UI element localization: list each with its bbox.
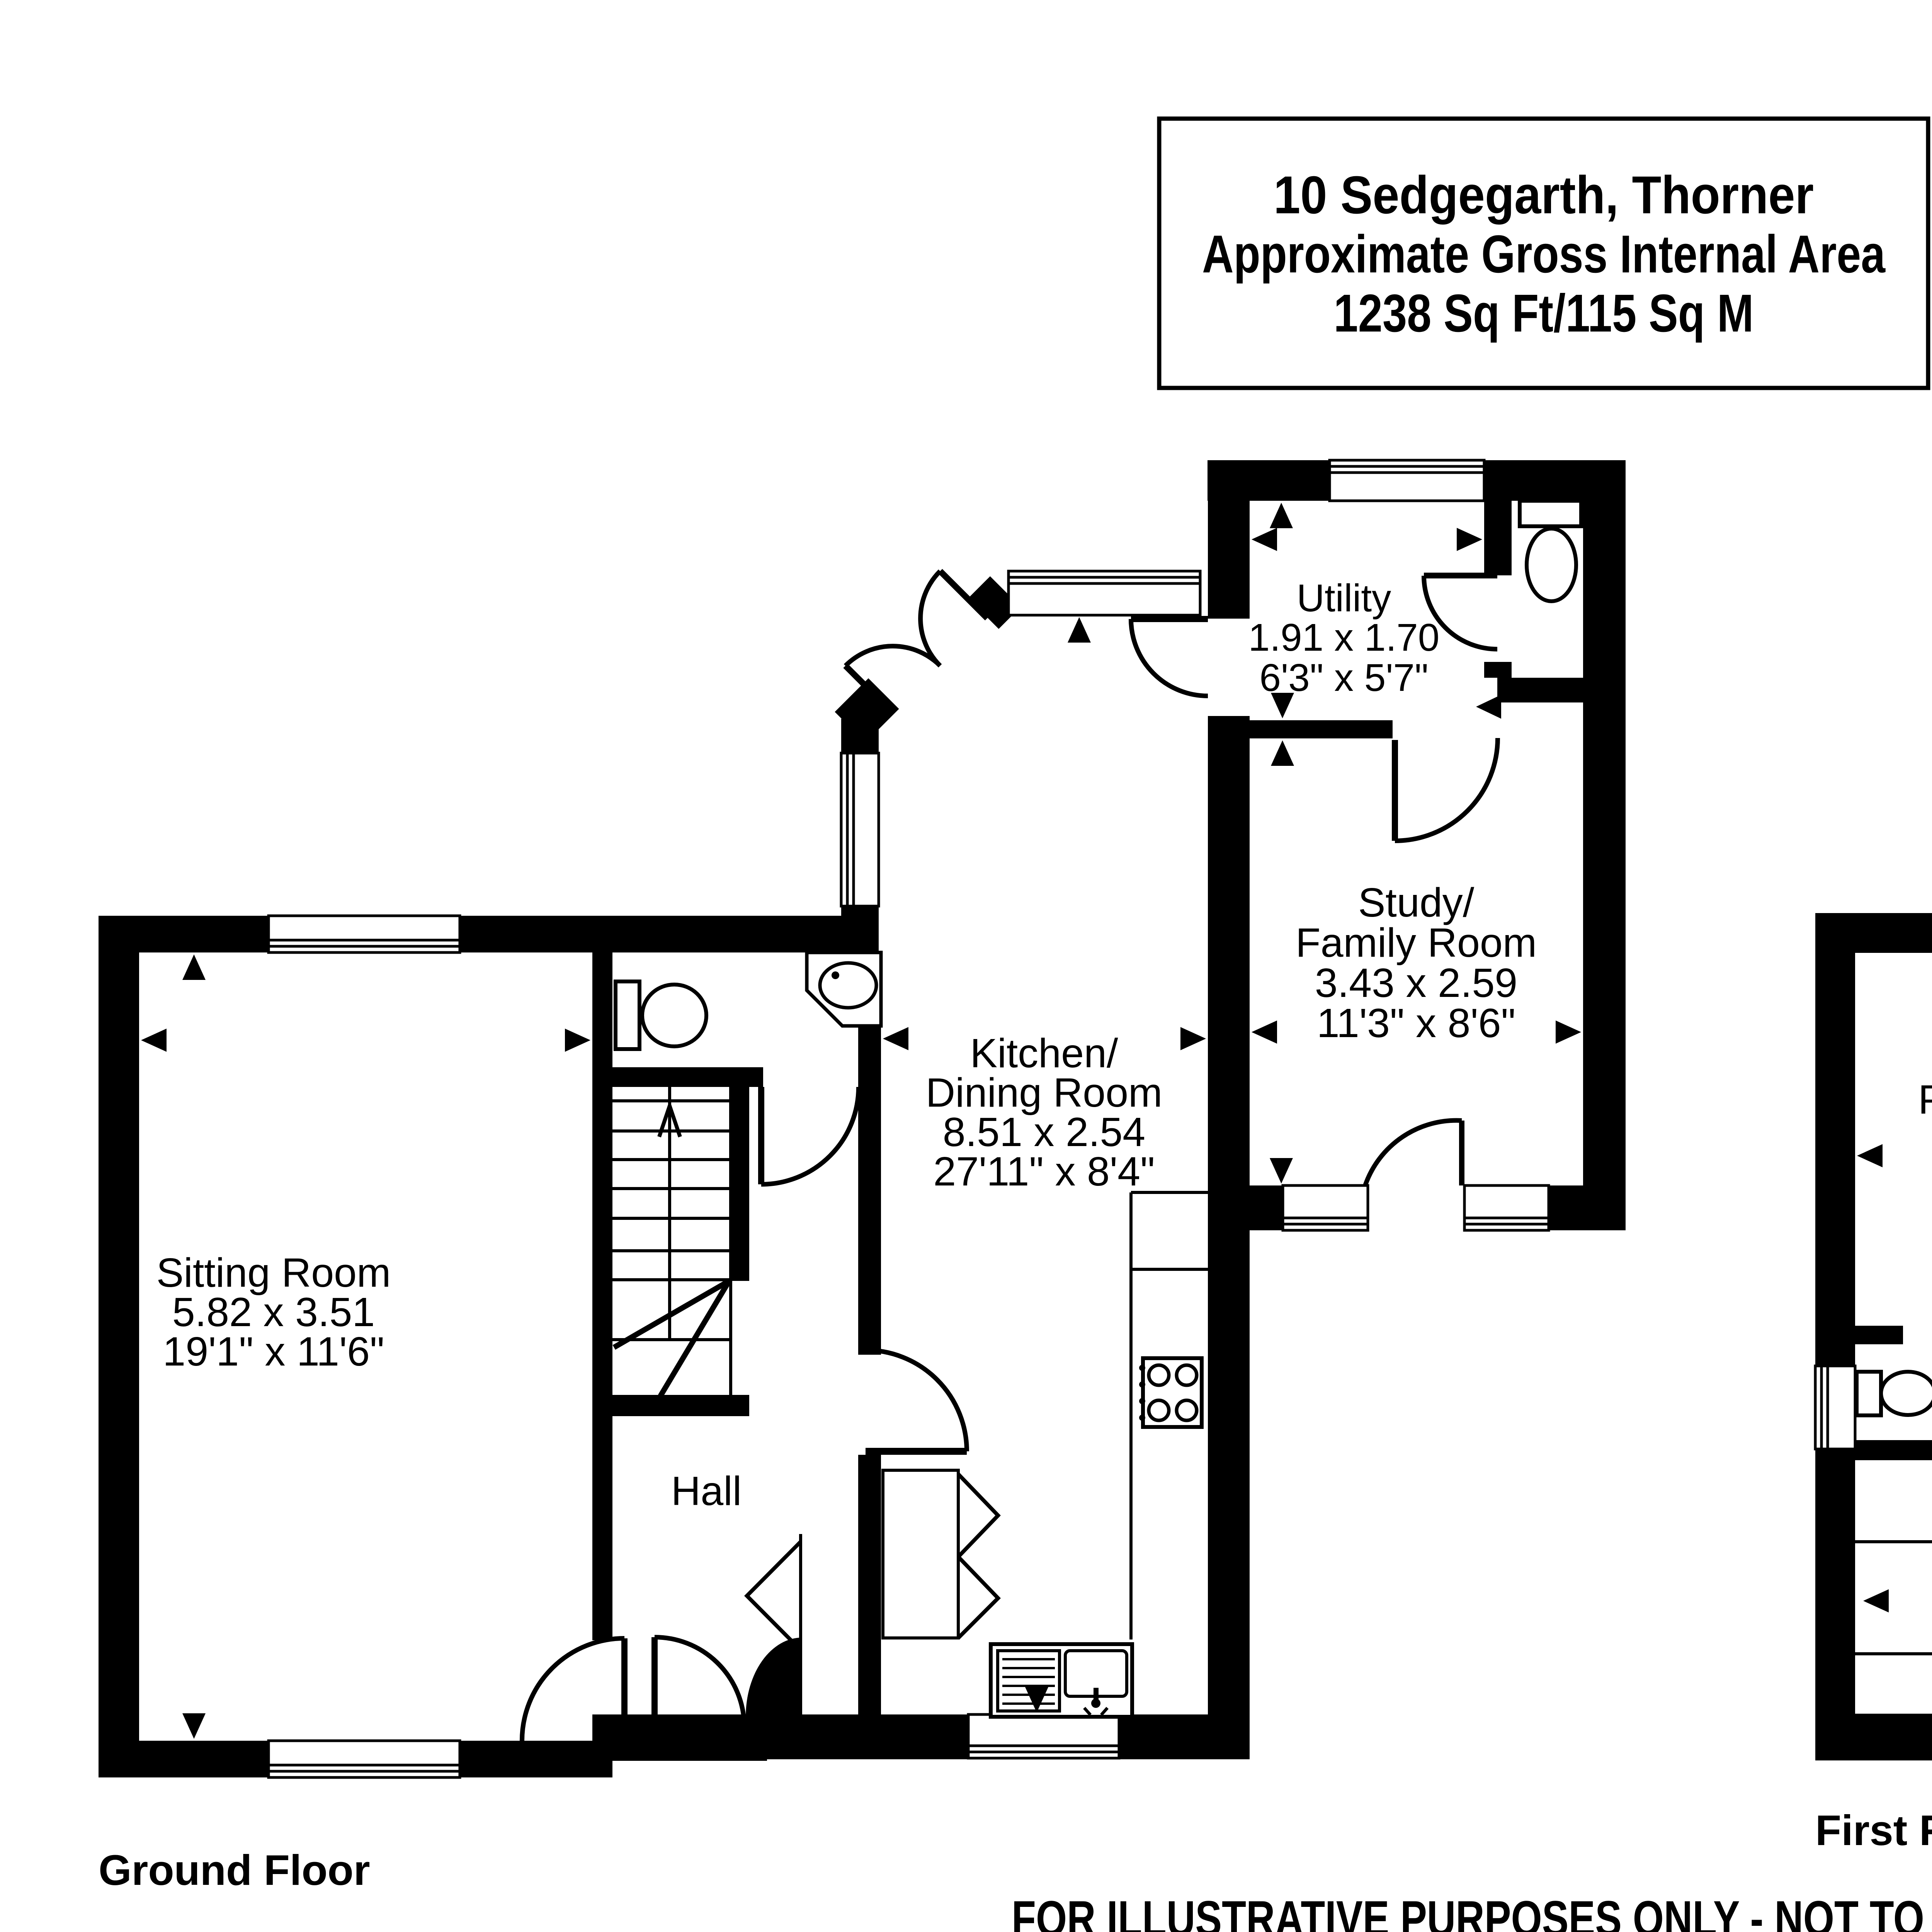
svg-text:5.82 x 3.51: 5.82 x 3.51: [172, 1289, 375, 1335]
svg-text:1.91 x 1.70: 1.91 x 1.70: [1248, 616, 1440, 659]
svg-text:6'3" x 5'7": 6'3" x 5'7": [1259, 656, 1428, 699]
svg-text:Family Room: Family Room: [1296, 920, 1537, 966]
svg-text:Hall: Hall: [671, 1468, 742, 1514]
svg-text:1238 Sq Ft/115 Sq M: 1238 Sq Ft/115 Sq M: [1334, 284, 1754, 343]
svg-text:Approximate Gross Internal Are: Approximate Gross Internal Area: [1202, 224, 1886, 284]
svg-text:FOR ILLUSTRATIVE PURPOSES ONLY: FOR ILLUSTRATIVE PURPOSES ONLY - NOT TO …: [1012, 1890, 1932, 1932]
svg-text:11'3" x 8'6": 11'3" x 8'6": [1317, 1000, 1516, 1046]
svg-text:First Floor: First Floor: [1815, 1807, 1932, 1854]
svg-text:19'1" x 11'6": 19'1" x 11'6": [163, 1329, 384, 1374]
svg-text:3.43 x 2.59: 3.43 x 2.59: [1315, 960, 1518, 1006]
svg-text:Sitting Room: Sitting Room: [156, 1250, 391, 1296]
svg-text:Dining Room: Dining Room: [926, 1070, 1163, 1116]
svg-text:Kitchen/: Kitchen/: [970, 1031, 1118, 1076]
svg-text:10 Sedgegarth, Thorner: 10 Sedgegarth, Thorner: [1274, 165, 1814, 225]
svg-text:8.51 x 2.54: 8.51 x 2.54: [943, 1109, 1146, 1155]
svg-text:27'11" x 8'4": 27'11" x 8'4": [933, 1149, 1155, 1194]
svg-text:Ground Floor: Ground Floor: [99, 1847, 370, 1894]
svg-text:Study/: Study/: [1358, 880, 1475, 925]
svg-text:Utility: Utility: [1297, 577, 1391, 620]
svg-text:Principal Bedroom: Principal Bedroom: [1918, 1077, 1932, 1122]
